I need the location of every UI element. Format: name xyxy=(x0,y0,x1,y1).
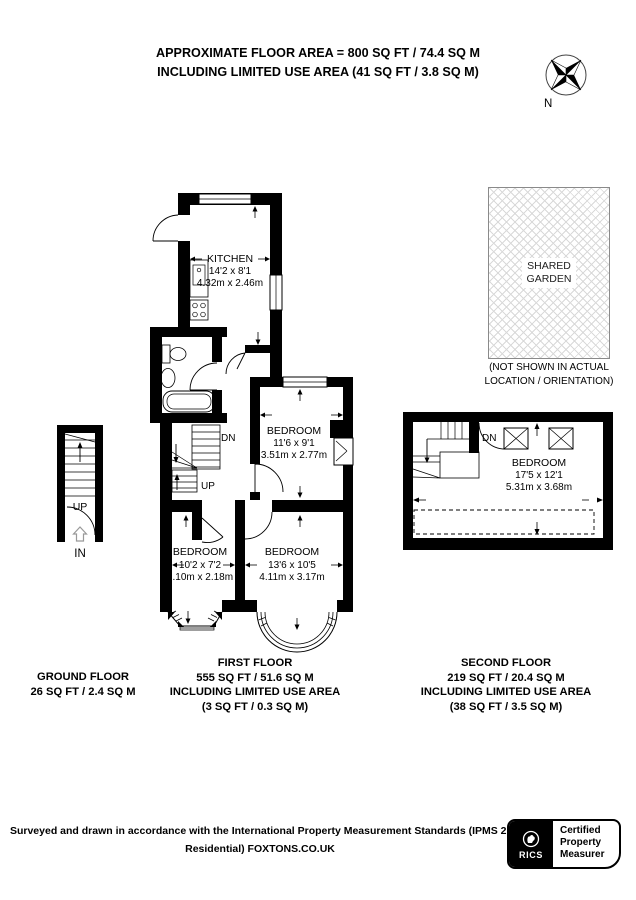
ground-floor-plan: UP IN xyxy=(40,410,160,570)
bedroom1-dim-metric: 3.51m x 2.77m xyxy=(261,450,327,461)
ground-floor-caption: GROUND FLOOR 26 SQ FT / 2.4 SQ M xyxy=(8,670,158,699)
bedroom2-label: BEDROOM xyxy=(173,546,227,558)
bedroom2-dim-imperial: 10'2 x 7'2 xyxy=(179,560,222,571)
kitchen-label: KITCHEN xyxy=(207,253,253,265)
basin-icon xyxy=(161,369,175,388)
kitchen-door-arc xyxy=(153,215,178,241)
round-bay-window xyxy=(257,612,337,652)
rics-logo: RICS xyxy=(509,821,553,867)
shared-garden-label: SHARED GARDEN xyxy=(522,258,577,288)
ground-in-label: IN xyxy=(74,548,86,560)
skylight-icon xyxy=(549,428,573,449)
second-floor-caption: SECOND FLOOR 219 SQ FT / 20.4 SQ M INCLU… xyxy=(400,656,612,714)
rics-certified-badge: RICS Certified Property Measurer xyxy=(507,819,621,869)
second-bedroom-dim-imperial: 17'5 x 12'1 xyxy=(515,470,563,481)
bedroom3-dim-imperial: 13'6 x 10'5 xyxy=(268,560,316,571)
compass-north-label: N xyxy=(544,98,552,110)
first-floor-caption: FIRST FLOOR 555 SQ FT / 51.6 SQ M INCLUD… xyxy=(160,656,350,714)
skylight-icon xyxy=(504,428,528,449)
bedroom1-door-arc xyxy=(255,464,283,492)
bedroom3-door-arc xyxy=(245,512,272,539)
garden-note: (NOT SHOWN IN ACTUAL LOCATION / ORIENTAT… xyxy=(448,361,636,389)
stairs-dn-label: DN xyxy=(221,433,235,444)
second-bedroom-label: BEDROOM xyxy=(512,457,566,469)
kitchen-dim-metric: 4.32m x 2.46m xyxy=(197,278,263,289)
rics-lion-icon xyxy=(521,829,541,849)
survey-disclaimer: Surveyed and drawn in accordance with th… xyxy=(0,822,520,858)
toilet-icon xyxy=(162,345,186,363)
bedroom3-dim-metric: 4.11m x 3.17m xyxy=(259,572,324,583)
compass-icon: N xyxy=(538,48,596,114)
bedroom1-window xyxy=(283,377,327,387)
ground-floor-stairs xyxy=(65,434,95,496)
hall-door-arc xyxy=(226,353,245,374)
bathtub-icon xyxy=(163,391,215,412)
first-floor-plan: DN UP xyxy=(150,180,390,660)
entrance-in-arrow-icon xyxy=(74,527,87,541)
ground-up-label: UP xyxy=(73,501,88,513)
kitchen-top-window xyxy=(199,194,251,204)
bedroom2-door-arc xyxy=(202,518,223,543)
rics-brand-label: RICS xyxy=(519,850,543,860)
bedroom1-label: BEDROOM xyxy=(267,425,321,437)
stairs-up-label: UP xyxy=(201,481,215,492)
limited-use-area-outline xyxy=(414,510,594,534)
bathroom-door-arc xyxy=(190,363,217,390)
floorplan-page: APPROXIMATE FLOOR AREA = 800 SQ FT / 74.… xyxy=(0,0,636,900)
second-floor-dn-label: DN xyxy=(482,433,496,444)
kitchen-side-window xyxy=(270,275,282,310)
bedroom3-label: BEDROOM xyxy=(265,546,319,558)
kitchen-dim-imperial: 14'2 x 8'1 xyxy=(209,266,252,277)
rics-cert-text: Certified Property Measurer xyxy=(553,821,619,867)
second-bedroom-dim-metric: 5.31m x 3.68m xyxy=(506,482,572,493)
bedroom1-dim-imperial: 11'6 x 9'1 xyxy=(273,438,315,449)
second-floor-plan: DN BEDROOM 17'5 x 12'1 5.31m x 3.68m xyxy=(400,398,625,558)
bedroom1-closet xyxy=(334,438,353,465)
bedroom2-dim-metric: 3.10m x 2.18m xyxy=(167,572,233,583)
small-bay-window xyxy=(168,611,222,630)
stove-icon xyxy=(190,300,208,320)
shared-garden-area: SHARED GARDEN xyxy=(488,187,610,359)
